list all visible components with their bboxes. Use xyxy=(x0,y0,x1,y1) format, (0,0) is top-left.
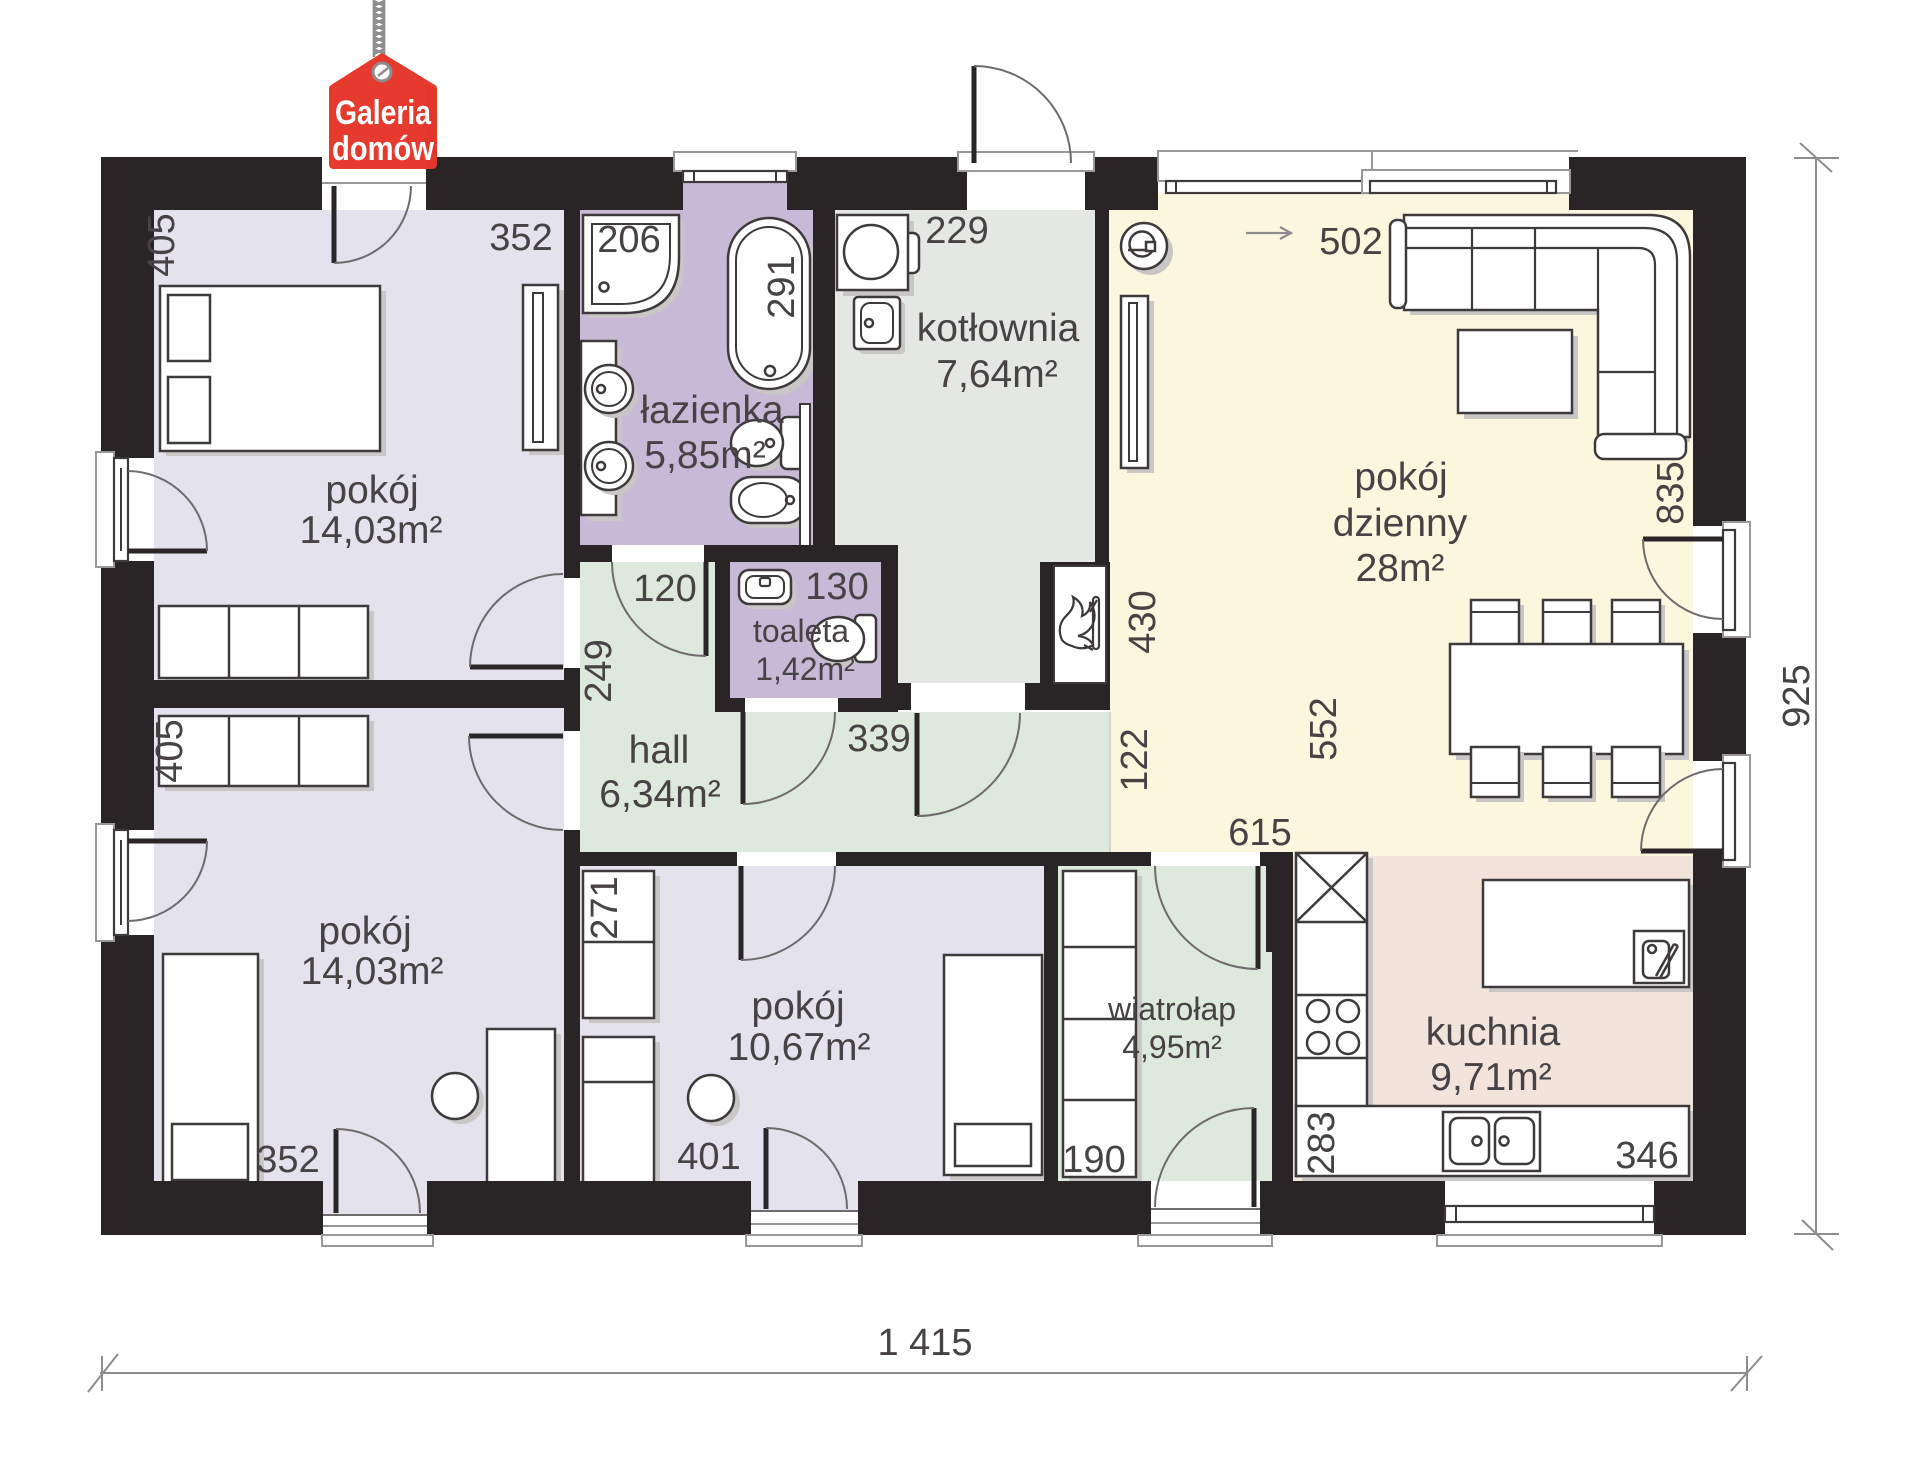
svg-text:pokój: pokój xyxy=(325,469,418,512)
svg-text:122: 122 xyxy=(1114,728,1156,791)
svg-text:Galeria: Galeria xyxy=(335,94,432,132)
svg-text:pokój: pokój xyxy=(751,985,844,1028)
svg-text:190: 190 xyxy=(1062,1139,1125,1181)
svg-text:wiatrołap: wiatrołap xyxy=(1107,991,1236,1027)
svg-text:615: 615 xyxy=(1228,812,1291,854)
svg-text:10,67m²: 10,67m² xyxy=(727,1026,870,1069)
svg-text:kuchnia: kuchnia xyxy=(1426,1011,1561,1054)
svg-text:339: 339 xyxy=(847,718,910,760)
svg-text:domów: domów xyxy=(332,130,434,168)
svg-text:835: 835 xyxy=(1650,461,1692,524)
svg-text:291: 291 xyxy=(761,255,803,318)
svg-text:pokój: pokój xyxy=(1354,456,1447,499)
svg-text:6,34m²: 6,34m² xyxy=(599,773,720,816)
svg-text:14,03m²: 14,03m² xyxy=(299,509,442,552)
svg-text:502: 502 xyxy=(1319,221,1382,263)
svg-text:120: 120 xyxy=(633,568,696,610)
svg-text:552: 552 xyxy=(1303,697,1345,760)
svg-text:9,71m²: 9,71m² xyxy=(1430,1056,1551,1099)
svg-text:hall: hall xyxy=(629,729,690,772)
svg-text:352: 352 xyxy=(489,217,552,259)
svg-text:pokój: pokój xyxy=(318,910,411,953)
svg-text:130: 130 xyxy=(805,566,868,608)
svg-text:5,85m²: 5,85m² xyxy=(644,434,765,477)
svg-text:249: 249 xyxy=(578,639,620,702)
svg-text:283: 283 xyxy=(1301,1111,1343,1174)
svg-text:405: 405 xyxy=(141,213,183,276)
svg-text:346: 346 xyxy=(1615,1135,1678,1177)
svg-text:229: 229 xyxy=(925,210,988,252)
svg-text:925: 925 xyxy=(1776,664,1818,727)
svg-text:1,42m²: 1,42m² xyxy=(755,651,855,687)
svg-text:430: 430 xyxy=(1122,590,1164,653)
svg-text:206: 206 xyxy=(597,219,660,261)
svg-text:405: 405 xyxy=(149,719,191,782)
svg-text:dzienny: dzienny xyxy=(1333,502,1468,545)
svg-text:271: 271 xyxy=(584,876,626,939)
svg-text:352: 352 xyxy=(256,1139,319,1181)
svg-text:4,95m²: 4,95m² xyxy=(1122,1029,1222,1065)
svg-text:401: 401 xyxy=(677,1136,740,1178)
svg-text:kotłownia: kotłownia xyxy=(917,307,1080,350)
svg-text:łazienka: łazienka xyxy=(640,389,783,432)
svg-text:28m²: 28m² xyxy=(1356,547,1445,590)
svg-text:14,03m²: 14,03m² xyxy=(300,950,443,993)
svg-text:toaleta: toaleta xyxy=(753,613,849,649)
svg-text:1 415: 1 415 xyxy=(877,1322,972,1364)
svg-text:7,64m²: 7,64m² xyxy=(936,353,1057,396)
